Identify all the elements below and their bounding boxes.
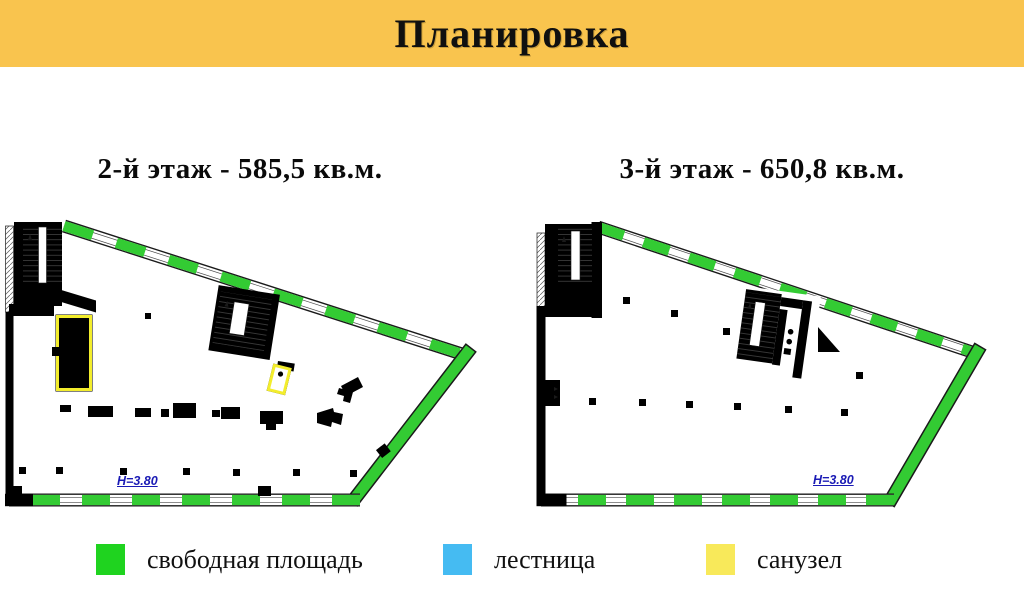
wall-box-3rd	[543, 380, 560, 406]
staircase-middle-2nd	[208, 285, 280, 360]
height-annotation-3rd: Н=3.80	[813, 473, 854, 487]
stair-landing-triangle-3rd	[818, 327, 840, 352]
staircase-top-left-3rd	[545, 224, 592, 308]
floor-plan-3rd	[537, 222, 980, 506]
free-area-swatch	[96, 544, 125, 575]
staircase-middle-3rd	[729, 285, 820, 383]
legend-item-free-area: свободная площадь	[96, 544, 363, 575]
height-annotation-2nd: Н=3.80	[117, 474, 158, 488]
floor-plans-drawing	[0, 0, 1024, 610]
staircase-label: лестница	[494, 545, 595, 575]
floor-plan-2nd	[5, 222, 469, 506]
bathroom-swatch	[706, 544, 735, 575]
free-area-label: свободная площадь	[147, 545, 363, 575]
columns-3rd	[589, 297, 863, 416]
bathroom-label: санузел	[757, 545, 842, 575]
legend-item-staircase: лестница	[443, 544, 595, 575]
page: { "header": { "title": "Планировка" }, "…	[0, 0, 1024, 610]
columns-2nd	[11, 467, 357, 496]
legend-item-bathroom: санузел	[706, 544, 842, 575]
staircase-swatch	[443, 544, 472, 575]
